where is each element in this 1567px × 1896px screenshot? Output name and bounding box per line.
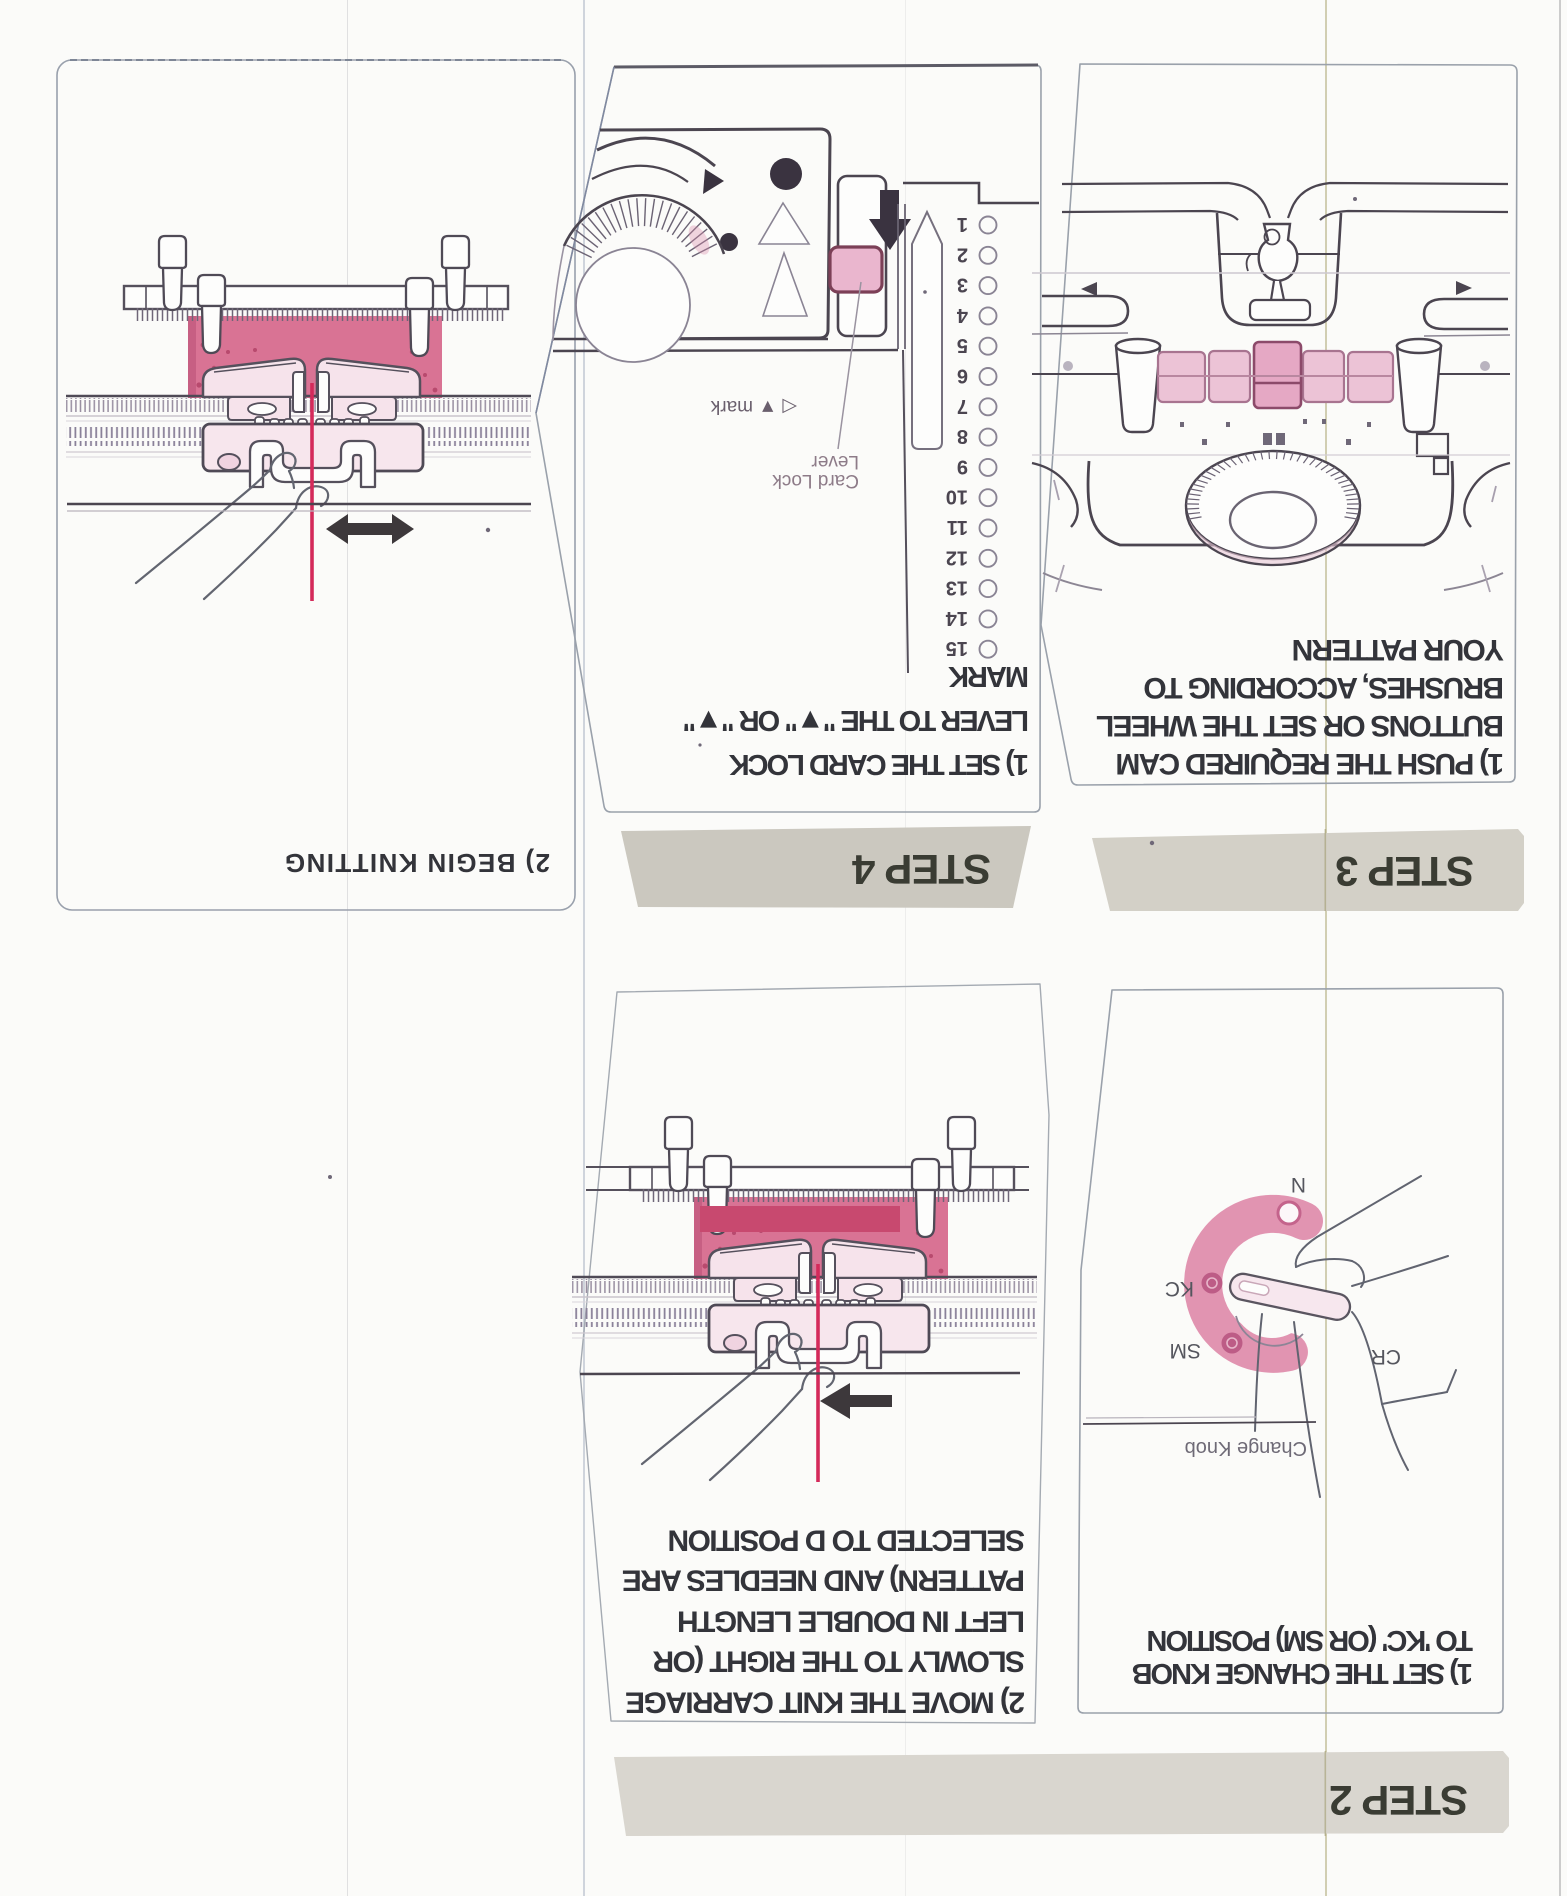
svg-text:13: 13 (946, 577, 968, 599)
svg-text:1: 1 (957, 213, 968, 235)
svg-text:11: 11 (947, 516, 968, 538)
svg-text:3: 3 (957, 274, 968, 296)
svg-text:6: 6 (957, 365, 968, 387)
svg-text:5: 5 (957, 334, 968, 356)
svg-text:9: 9 (957, 455, 968, 477)
svg-text:10: 10 (946, 486, 968, 508)
svg-text:4: 4 (956, 304, 968, 326)
svg-text:14: 14 (945, 607, 968, 629)
svg-text:7: 7 (957, 395, 968, 417)
svg-text:8: 8 (957, 425, 968, 447)
svg-text:2: 2 (957, 243, 968, 265)
svg-text:12: 12 (946, 546, 968, 568)
